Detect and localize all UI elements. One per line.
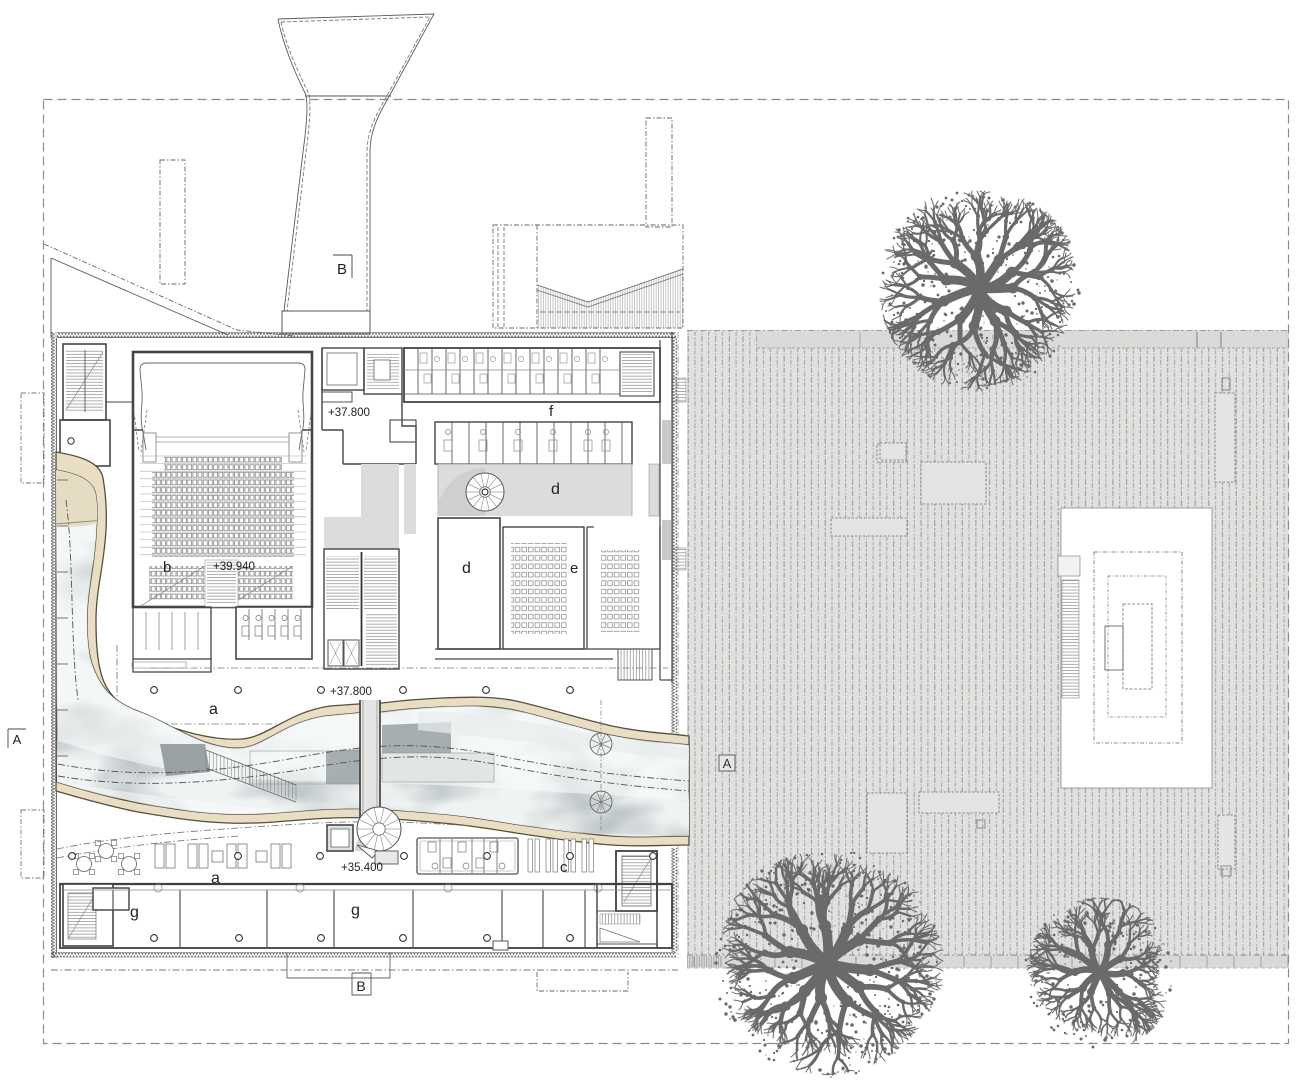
svg-text:d: d <box>462 560 471 577</box>
svg-text:a: a <box>209 701 218 718</box>
svg-text:+35.400: +35.400 <box>341 862 383 874</box>
svg-text:A: A <box>13 732 22 747</box>
svg-text:d: d <box>551 481 560 498</box>
svg-text:+37.800: +37.800 <box>330 686 372 698</box>
svg-text:+37.800: +37.800 <box>328 407 370 419</box>
svg-text:g: g <box>130 904 139 921</box>
svg-text:+39.940: +39.940 <box>213 561 255 573</box>
svg-text:e: e <box>570 560 578 577</box>
svg-text:c: c <box>560 859 568 876</box>
svg-text:A: A <box>723 756 732 771</box>
svg-text:g: g <box>351 902 360 919</box>
svg-text:b: b <box>163 559 171 576</box>
svg-text:B: B <box>356 978 365 994</box>
svg-text:B: B <box>337 261 347 278</box>
